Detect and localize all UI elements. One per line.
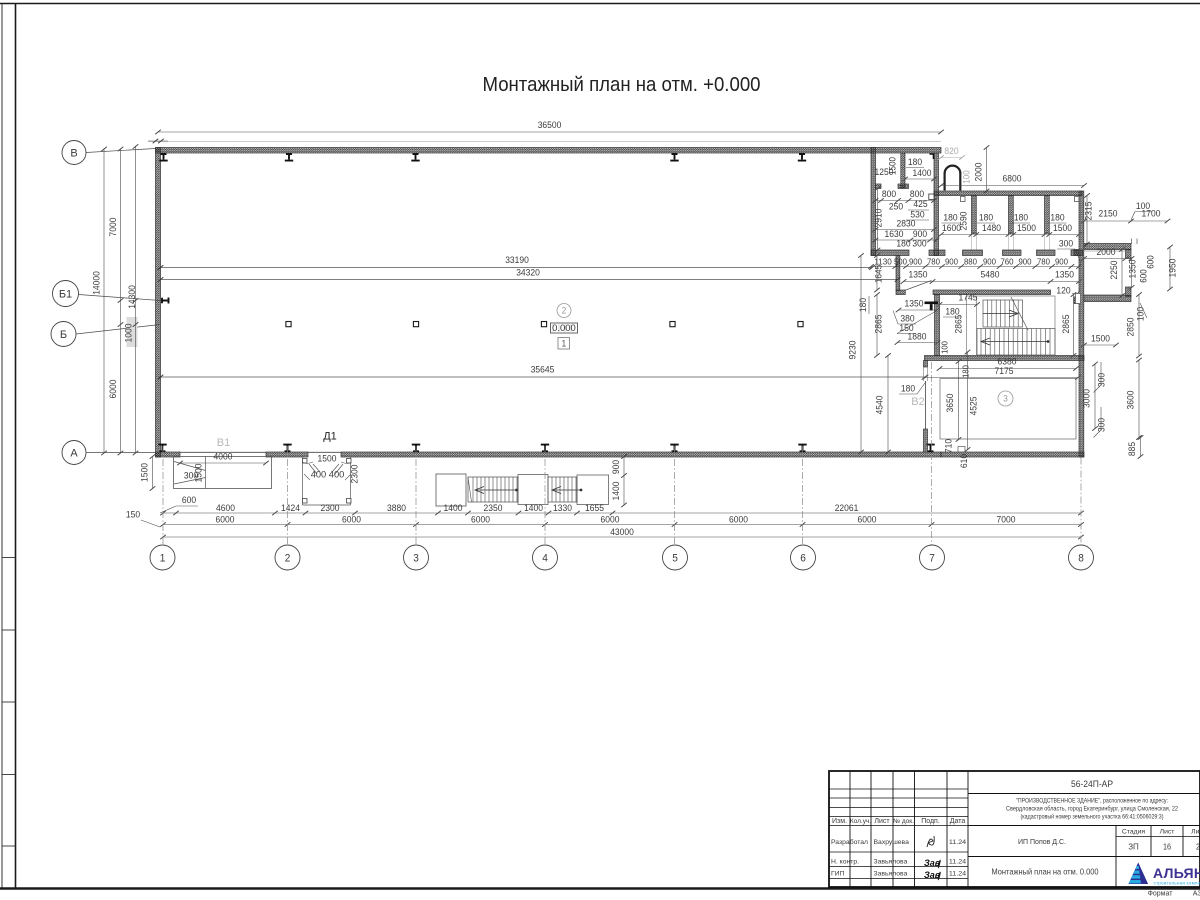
svg-text:180: 180	[961, 365, 971, 378]
svg-text:1500: 1500	[1091, 334, 1110, 344]
svg-text:5480: 5480	[981, 270, 1000, 280]
svg-text:600: 600	[1139, 269, 1149, 282]
svg-text:7000: 7000	[997, 514, 1016, 524]
svg-text:6000: 6000	[108, 380, 118, 399]
svg-text:Кол.уч.: Кол.уч.	[850, 818, 871, 825]
svg-text:800: 800	[910, 189, 924, 199]
svg-text:300: 300	[1097, 373, 1107, 387]
svg-text:34320: 34320	[516, 268, 540, 278]
svg-text:14300: 14300	[127, 285, 137, 309]
svg-text:6000: 6000	[216, 514, 235, 524]
svg-text:Разработал: Разработал	[831, 838, 868, 846]
svg-text:1500: 1500	[194, 464, 204, 483]
svg-text:Лист: Лист	[1160, 829, 1175, 836]
svg-text:2865: 2865	[874, 315, 884, 334]
svg-text:Зав: Зав	[924, 858, 941, 868]
svg-text:1000: 1000	[124, 324, 134, 343]
svg-text:100: 100	[1136, 201, 1150, 211]
svg-text:Б1: Б1	[59, 288, 72, 300]
svg-text:6380: 6380	[998, 357, 1017, 367]
svg-text:1: 1	[561, 339, 566, 349]
svg-text:1500: 1500	[318, 454, 337, 464]
svg-text:6000: 6000	[858, 514, 877, 524]
svg-text:6000: 6000	[729, 514, 748, 524]
svg-text:Лис: Лис	[1191, 829, 1200, 836]
svg-text:180: 180	[858, 298, 868, 312]
svg-text:880: 880	[964, 256, 977, 266]
svg-text:Подп.: Подп.	[921, 818, 940, 825]
svg-text:7000: 7000	[108, 218, 118, 237]
svg-text:1424: 1424	[281, 503, 300, 513]
svg-text:6800: 6800	[1003, 174, 1022, 184]
svg-text:4525: 4525	[969, 397, 979, 416]
svg-text:Лист: Лист	[874, 818, 890, 825]
svg-text:56-24П-АР: 56-24П-АР	[1071, 779, 1113, 789]
svg-text:"ПРОИЗВОДСТВЕННОЕ ЗДАНИЕ", рас: "ПРОИЗВОДСТВЕННОЕ ЗДАНИЕ", расположенное…	[1016, 798, 1168, 805]
svg-text:900: 900	[983, 256, 996, 266]
svg-text:Изм.: Изм.	[832, 818, 847, 825]
svg-text:100: 100	[962, 170, 972, 183]
svg-text:2150: 2150	[1099, 209, 1118, 219]
svg-text:В: В	[70, 147, 77, 159]
svg-text:425: 425	[913, 199, 927, 209]
svg-text:1400: 1400	[444, 503, 463, 513]
svg-text:1880: 1880	[908, 332, 927, 342]
svg-text:2850: 2850	[1126, 318, 1136, 337]
svg-text:300: 300	[1097, 418, 1107, 432]
svg-text:180: 180	[1014, 213, 1028, 223]
svg-text:4540: 4540	[875, 396, 885, 415]
svg-text:1350: 1350	[1055, 270, 1074, 280]
svg-text:6000: 6000	[342, 514, 361, 524]
svg-text:Д1: Д1	[323, 431, 337, 443]
svg-text:Завьялова: Завьялова	[874, 859, 908, 866]
svg-text:1480: 1480	[982, 223, 1001, 233]
svg-text:7: 7	[929, 552, 935, 564]
svg-text:Вахрушева: Вахрушева	[874, 839, 910, 846]
svg-text:2300: 2300	[350, 465, 360, 484]
svg-text:2000: 2000	[1097, 247, 1116, 257]
svg-text:780: 780	[1037, 256, 1050, 266]
svg-text:180: 180	[901, 384, 915, 394]
svg-text:600: 600	[182, 495, 196, 505]
svg-text:А3: А3	[1193, 891, 1200, 898]
svg-text:35645: 35645	[531, 365, 555, 375]
svg-text:1500: 1500	[888, 157, 898, 175]
svg-text:2: 2	[1196, 843, 1200, 852]
svg-text:1400: 1400	[913, 168, 932, 178]
svg-text:Монтажный план на отм. +0.000: Монтажный план на отм. +0.000	[483, 73, 761, 96]
svg-text:Монтажный план на отм. 0.000: Монтажный план на отм. 0.000	[992, 868, 1099, 877]
svg-text:Формат: Формат	[1148, 891, 1174, 898]
svg-text:900: 900	[909, 256, 922, 266]
svg-text:250: 250	[889, 202, 903, 212]
svg-text:180: 180	[908, 157, 922, 167]
svg-text:1500: 1500	[1053, 223, 1072, 233]
svg-text:Б: Б	[60, 329, 67, 341]
svg-text:1350: 1350	[905, 299, 924, 309]
svg-text:36500: 36500	[538, 120, 562, 130]
svg-text:строительная компания: строительная компания	[1154, 881, 1200, 886]
svg-text:1950: 1950	[1168, 259, 1178, 278]
svg-text:6000: 6000	[471, 514, 490, 524]
svg-text:760: 760	[1000, 256, 1013, 266]
svg-text:6: 6	[800, 552, 806, 564]
svg-text:900: 900	[1018, 256, 1031, 266]
svg-text:ИП Попов Д.С.: ИП Попов Д.С.	[1018, 837, 1066, 846]
svg-text:180: 180	[943, 213, 957, 223]
svg-text:11.24: 11.24	[949, 871, 967, 878]
svg-text:1400: 1400	[524, 503, 543, 513]
svg-text:900: 900	[945, 256, 958, 266]
svg-text:885: 885	[1127, 442, 1137, 456]
svg-text:800: 800	[882, 189, 896, 199]
svg-text:2300: 2300	[321, 503, 340, 513]
svg-text:ГИП: ГИП	[831, 871, 845, 878]
svg-text:1630: 1630	[885, 229, 904, 239]
svg-text:2830: 2830	[897, 219, 916, 229]
svg-text:1350: 1350	[1128, 260, 1138, 279]
svg-text:820: 820	[944, 146, 958, 156]
svg-text:(кадастровый номер земельного: (кадастровый номер земельного участка 66…	[1021, 813, 1164, 821]
svg-text:1655: 1655	[585, 503, 604, 513]
svg-text:16: 16	[1163, 843, 1172, 852]
svg-text:В1: В1	[217, 437, 230, 449]
svg-text:100: 100	[940, 341, 950, 354]
svg-text:2865: 2865	[1061, 315, 1071, 334]
svg-text:900: 900	[611, 460, 621, 474]
svg-text:1: 1	[160, 552, 166, 564]
svg-text:8: 8	[1078, 552, 1084, 564]
svg-text:7175: 7175	[995, 366, 1014, 376]
svg-text:В2: В2	[911, 396, 924, 408]
svg-text:Стадия: Стадия	[1122, 829, 1145, 836]
svg-text:0.000: 0.000	[552, 323, 576, 333]
svg-text:33190: 33190	[505, 255, 529, 265]
svg-text:5: 5	[672, 552, 678, 564]
svg-text:2910: 2910	[874, 209, 884, 228]
svg-text:ЗП: ЗП	[1128, 843, 1139, 852]
svg-text:4: 4	[542, 552, 548, 564]
svg-text:АЛЬЯНС: АЛЬЯНС	[1153, 865, 1200, 881]
svg-text:Свердловская область, город Ек: Свердловская область, город Екатеринбург…	[1006, 805, 1178, 813]
svg-text:43000: 43000	[610, 527, 634, 537]
svg-text:А: А	[70, 447, 78, 459]
svg-text:100: 100	[1136, 307, 1146, 321]
svg-text:2590: 2590	[959, 212, 969, 231]
svg-text:3880: 3880	[387, 503, 406, 513]
svg-text:180: 180	[979, 213, 993, 223]
svg-text:3000: 3000	[1082, 389, 1092, 408]
svg-text:780: 780	[927, 256, 940, 266]
svg-text:3600: 3600	[1126, 391, 1136, 410]
svg-text:900: 900	[1055, 256, 1068, 266]
svg-text:№ док.: № док.	[893, 818, 914, 825]
svg-text:11.24: 11.24	[949, 839, 967, 846]
svg-text:300: 300	[1059, 239, 1073, 249]
svg-text:1330: 1330	[553, 503, 572, 513]
svg-text:Зав: Зав	[924, 870, 941, 880]
svg-text:1500: 1500	[140, 463, 150, 482]
svg-text:Дата: Дата	[950, 818, 966, 825]
svg-text:150: 150	[126, 510, 140, 520]
svg-text:2865: 2865	[954, 315, 964, 334]
svg-text:1745: 1745	[959, 293, 978, 303]
svg-text:6000: 6000	[601, 514, 620, 524]
svg-text:9230: 9230	[848, 341, 858, 360]
svg-text:180: 180	[896, 239, 910, 249]
svg-text:14000: 14000	[92, 271, 102, 295]
svg-text:Завьялова: Завьялова	[874, 871, 908, 878]
svg-text:600: 600	[1146, 255, 1156, 268]
svg-text:2315: 2315	[1084, 202, 1094, 221]
svg-text:710: 710	[944, 439, 954, 453]
svg-text:120: 120	[1056, 286, 1070, 296]
svg-text:3: 3	[413, 552, 419, 564]
svg-text:180: 180	[1050, 213, 1064, 223]
svg-text:2350: 2350	[484, 503, 503, 513]
svg-text:4000: 4000	[214, 452, 233, 462]
svg-text:610: 610	[959, 454, 969, 468]
svg-text:1400: 1400	[611, 482, 621, 501]
svg-text:380: 380	[900, 314, 914, 324]
svg-text:2250: 2250	[1109, 261, 1119, 280]
svg-text:400 400: 400 400	[311, 470, 345, 480]
svg-text:1350: 1350	[909, 270, 928, 280]
svg-text:2: 2	[285, 552, 291, 564]
svg-text:1645: 1645	[874, 265, 884, 283]
svg-text:2000: 2000	[974, 163, 984, 182]
svg-text:300: 300	[912, 239, 926, 249]
svg-text:22061: 22061	[835, 503, 859, 513]
svg-text:Н. контр.: Н. контр.	[831, 859, 859, 866]
svg-text:1500: 1500	[1017, 223, 1036, 233]
svg-text:2: 2	[562, 306, 567, 316]
svg-text:3650: 3650	[945, 394, 955, 413]
svg-text:900: 900	[913, 229, 927, 239]
svg-text:3: 3	[1003, 394, 1008, 404]
svg-text:11.24: 11.24	[949, 859, 967, 866]
svg-text:4600: 4600	[216, 503, 235, 513]
